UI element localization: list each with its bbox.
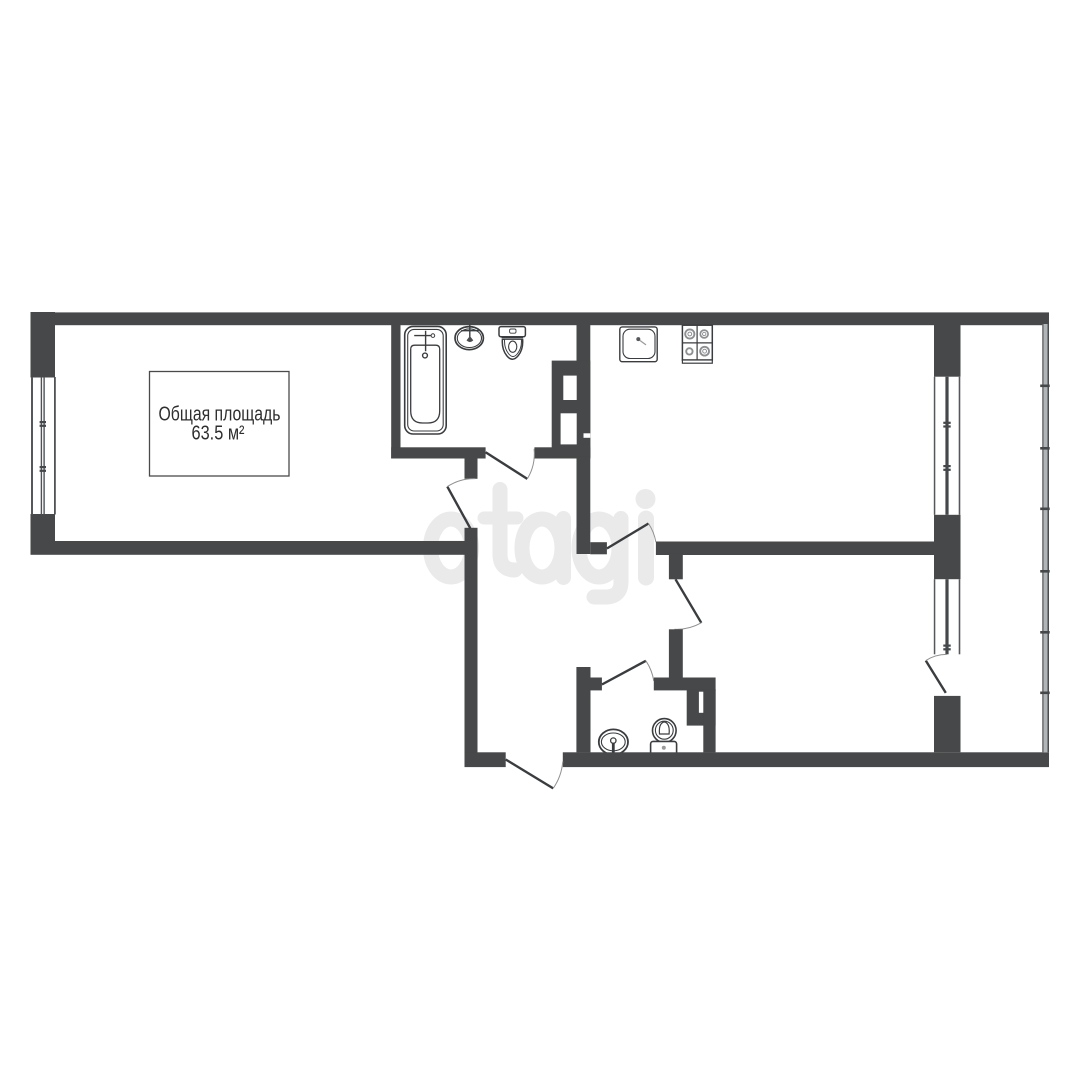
svg-text:63.5 м²: 63.5 м² xyxy=(192,422,245,445)
